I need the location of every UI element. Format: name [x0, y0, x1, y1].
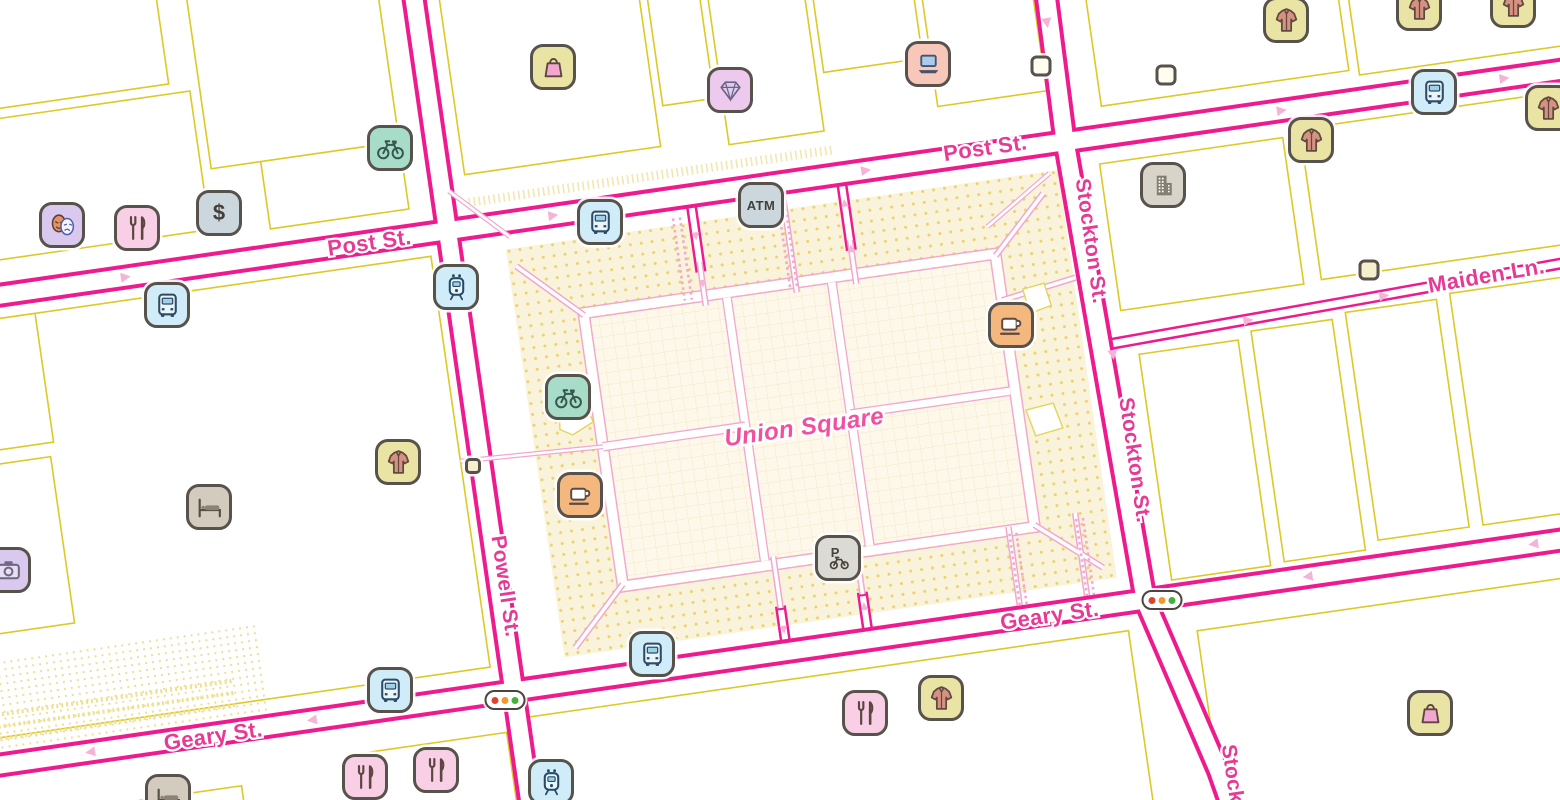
cafe-icon[interactable]	[557, 472, 603, 518]
restaurant-icon[interactable]	[413, 747, 459, 793]
poi-marker-icon[interactable]	[1156, 65, 1177, 86]
jewelry-store-icon[interactable]	[707, 67, 753, 113]
poi-marker-icon[interactable]	[1359, 260, 1380, 281]
clothing-store-icon[interactable]	[1263, 0, 1309, 43]
bus-stop-icon[interactable]	[144, 282, 190, 328]
traffic-lamp	[492, 697, 499, 704]
traffic-signal-icon[interactable]	[1142, 590, 1183, 610]
bus-stop-icon[interactable]	[629, 631, 675, 677]
traffic-lamp	[1169, 597, 1176, 604]
theater-icon[interactable]	[39, 202, 85, 248]
poi-marker-icon[interactable]	[1031, 56, 1052, 77]
clothing-store-icon[interactable]	[1490, 0, 1536, 28]
clothing-store-icon[interactable]	[1396, 0, 1442, 31]
electronics-store-icon[interactable]	[905, 41, 951, 87]
bus-stop-icon[interactable]	[367, 667, 413, 713]
map-canvas[interactable]: Post St. Post St. Geary St. Geary St. Po…	[0, 0, 1560, 800]
poi-layer: $ATMP	[0, 0, 1560, 800]
traffic-signal-icon[interactable]	[485, 690, 526, 710]
bikeshare-station-icon[interactable]	[545, 374, 591, 420]
clothing-store-icon[interactable]	[918, 675, 964, 721]
cable-car-stop-icon[interactable]	[528, 759, 574, 800]
hotel-icon[interactable]	[145, 774, 191, 800]
traffic-lamp	[1159, 597, 1166, 604]
traffic-lamp	[512, 697, 519, 704]
poi-marker-icon[interactable]	[465, 458, 481, 474]
bus-stop-icon[interactable]	[1411, 69, 1457, 115]
atm-icon[interactable]: ATM	[738, 182, 784, 228]
restaurant-icon[interactable]	[842, 690, 888, 736]
clothing-store-icon[interactable]	[1525, 85, 1560, 131]
cable-car-stop-icon[interactable]	[433, 264, 479, 310]
clothing-store-icon[interactable]	[375, 439, 421, 485]
shopping-bag-store-icon[interactable]	[1407, 690, 1453, 736]
restaurant-icon[interactable]	[342, 754, 388, 800]
bus-stop-icon[interactable]	[577, 199, 623, 245]
camera-shop-icon[interactable]	[0, 547, 31, 593]
restaurant-icon[interactable]	[114, 205, 160, 251]
traffic-lamp	[502, 697, 509, 704]
clothing-store-icon[interactable]	[1288, 117, 1334, 163]
bike-parking-icon[interactable]: P	[815, 535, 861, 581]
traffic-lamp	[1149, 597, 1156, 604]
shopping-bag-store-icon[interactable]	[530, 44, 576, 90]
hotel-icon[interactable]	[186, 484, 232, 530]
currency-exchange-icon[interactable]: $	[196, 190, 242, 236]
bikeshare-station-icon[interactable]	[367, 125, 413, 171]
cafe-icon[interactable]	[988, 302, 1034, 348]
office-building-icon[interactable]	[1140, 162, 1186, 208]
